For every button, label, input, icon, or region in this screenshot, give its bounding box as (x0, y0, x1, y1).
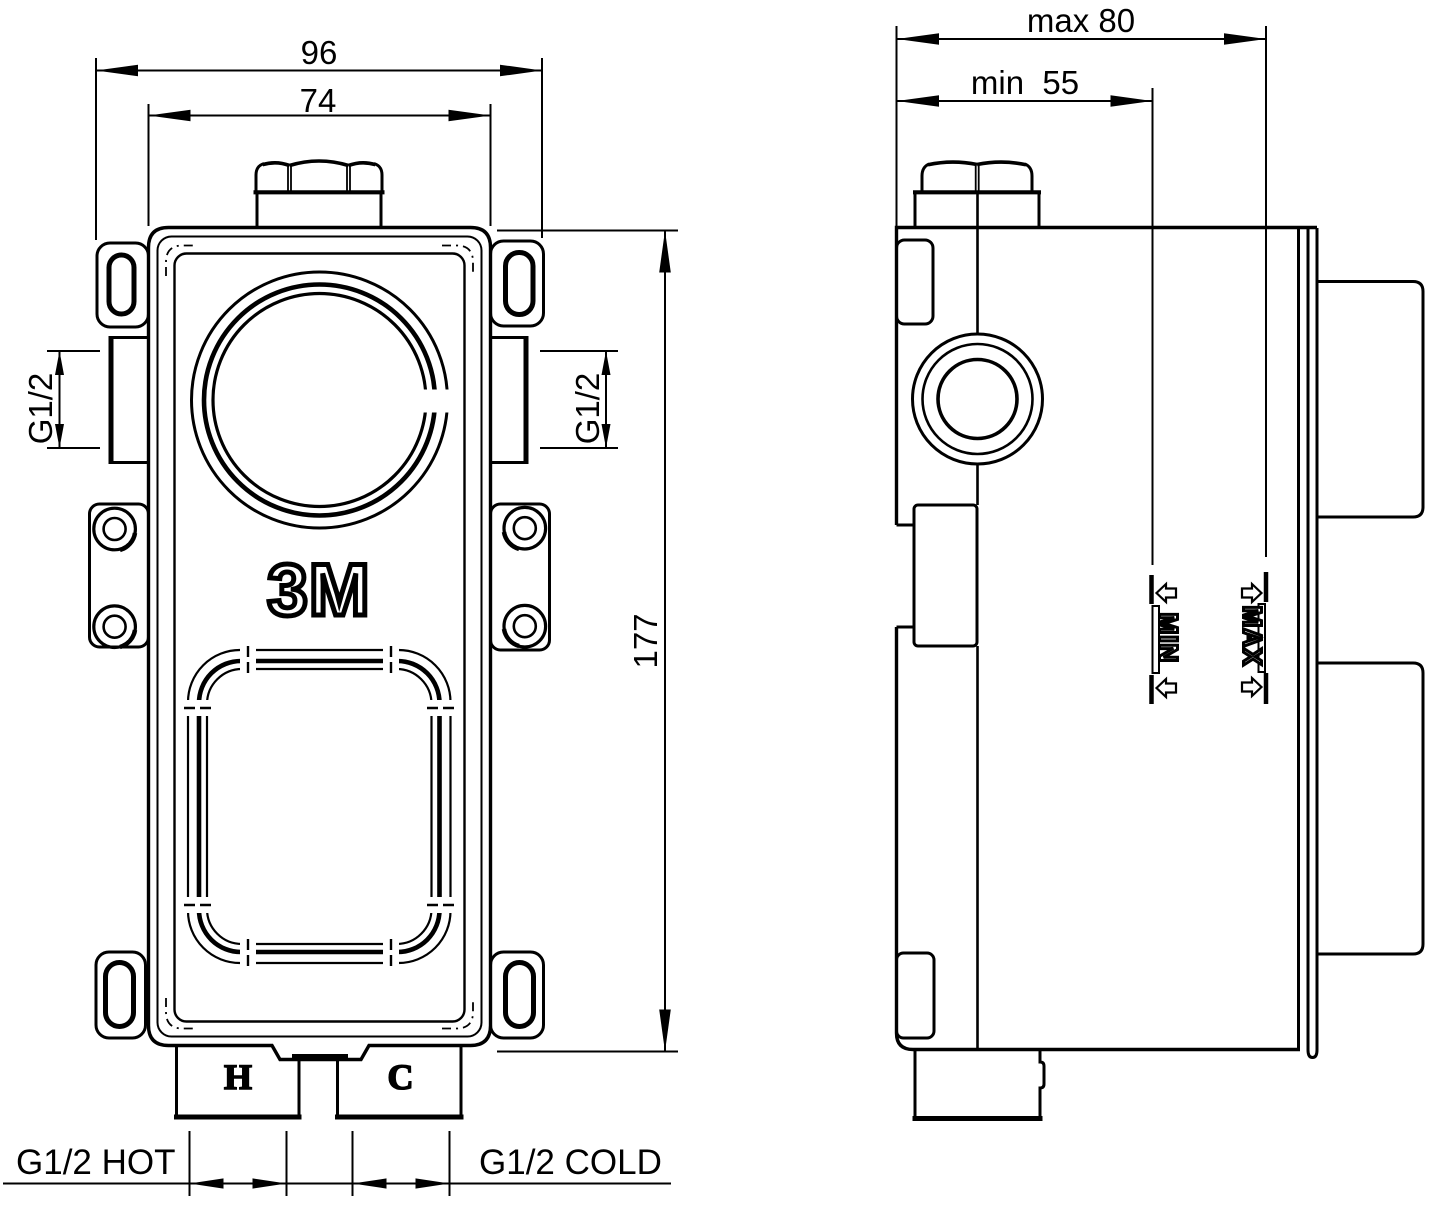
svg-text:96: 96 (301, 34, 338, 71)
svg-text:74: 74 (300, 82, 337, 119)
svg-text:G1/2: G1/2 (569, 373, 606, 445)
svg-text:MIN: MIN (1154, 613, 1184, 664)
svg-text:max 80: max 80 (1027, 2, 1135, 39)
svg-text:3M: 3M (267, 550, 370, 631)
svg-text:MAX: MAX (1238, 606, 1268, 667)
svg-text:G1/2: G1/2 (22, 373, 59, 445)
svg-text:177: 177 (627, 613, 664, 668)
svg-text:C: C (388, 1057, 414, 1097)
svg-text:H: H (224, 1057, 252, 1097)
svg-text:min 55: min 55 (971, 64, 1079, 101)
svg-text:G1/2 COLD: G1/2 COLD (479, 1143, 662, 1182)
svg-text:G1/2 HOT: G1/2 HOT (16, 1143, 175, 1182)
